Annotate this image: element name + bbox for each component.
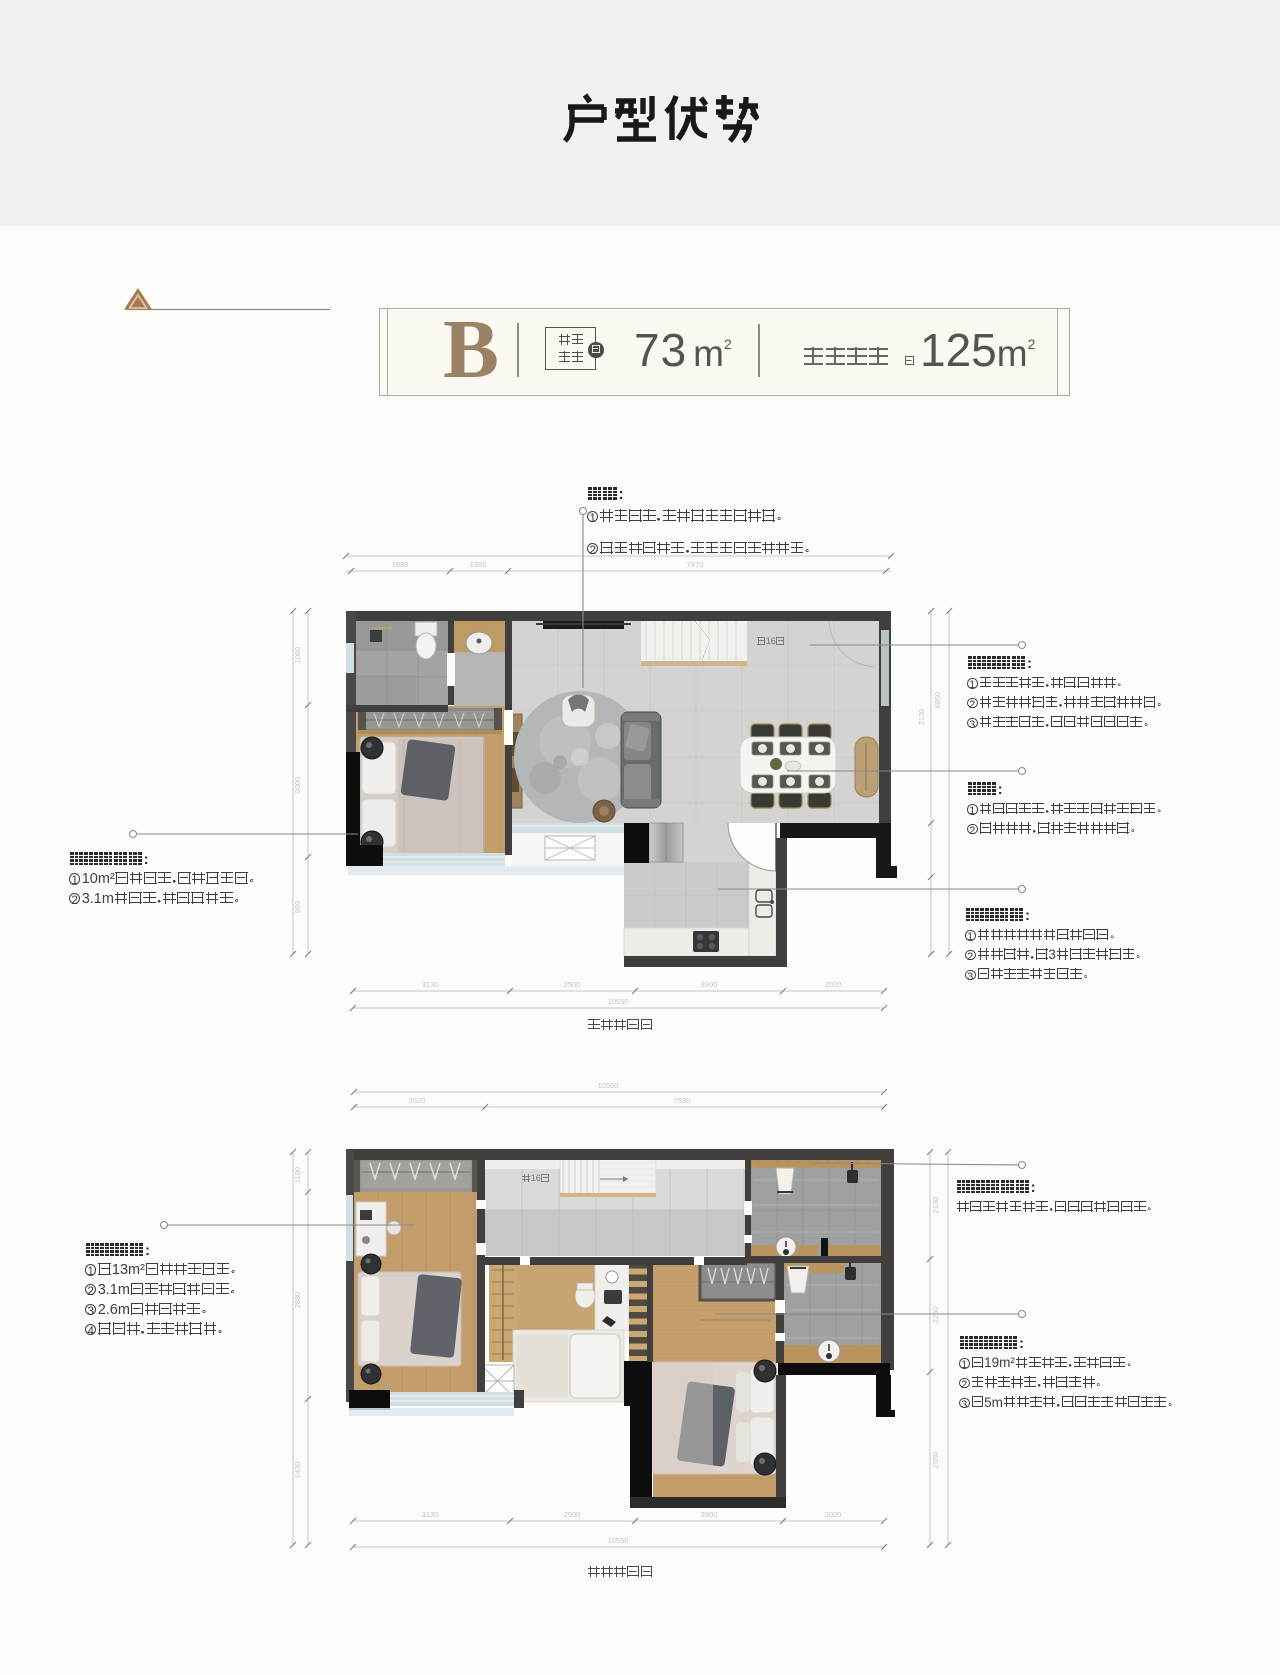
svg-text:1180: 1180 xyxy=(293,1167,302,1183)
svg-text:2620: 2620 xyxy=(409,1096,426,1105)
svg-text:2130: 2130 xyxy=(931,1197,940,1214)
svg-text:7470: 7470 xyxy=(687,560,704,569)
svg-text:1300: 1300 xyxy=(470,560,487,569)
svg-text:3130: 3130 xyxy=(422,980,439,989)
svg-text:3130: 3130 xyxy=(422,1510,439,1519)
svg-text:2020: 2020 xyxy=(825,980,842,989)
svg-text:3000: 3000 xyxy=(293,777,302,794)
svg-text:7930: 7930 xyxy=(674,1096,691,1105)
svg-text:6850: 6850 xyxy=(933,692,942,709)
svg-text:2250: 2250 xyxy=(931,1307,940,1324)
svg-text:10550: 10550 xyxy=(608,1536,629,1545)
svg-text:1060: 1060 xyxy=(293,647,302,664)
svg-text:2500: 2500 xyxy=(564,980,581,989)
svg-text:2500: 2500 xyxy=(564,1510,581,1519)
svg-text:1880: 1880 xyxy=(392,560,409,569)
svg-text:2020: 2020 xyxy=(825,1510,842,1519)
svg-text:3900: 3900 xyxy=(701,980,718,989)
svg-text:1430: 1430 xyxy=(293,1462,302,1479)
svg-text:10550: 10550 xyxy=(608,997,629,1006)
svg-text:2130: 2130 xyxy=(917,709,926,726)
svg-text:2550: 2550 xyxy=(931,1452,940,1469)
svg-text:10550: 10550 xyxy=(598,1081,619,1090)
svg-text:3900: 3900 xyxy=(701,1510,718,1519)
